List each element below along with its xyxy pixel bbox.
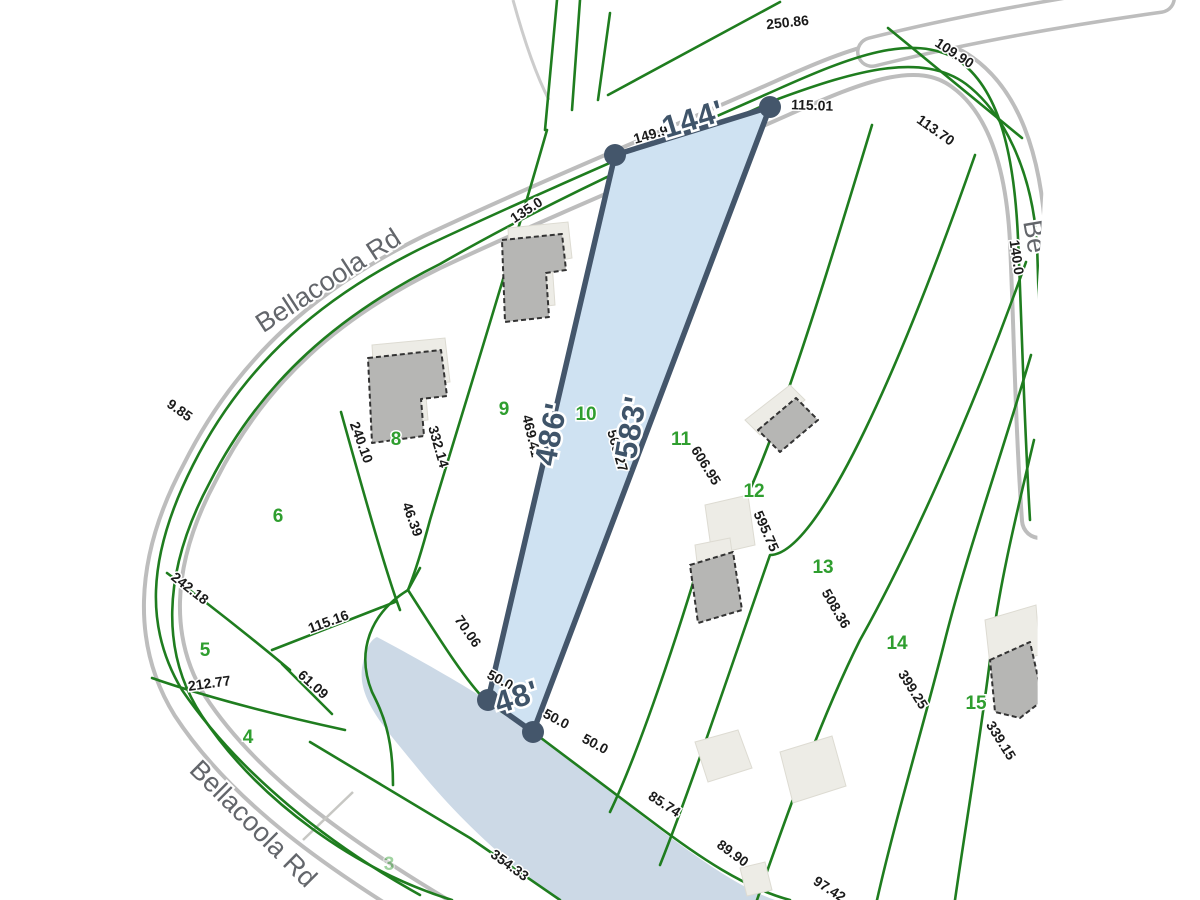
map-canvas: Bellacoola RdBellacoola RdBe 250.86109.9… [0,0,1200,900]
dimension-label: 46.39 [399,500,426,539]
road-branch-northeast [872,0,1160,52]
dimension-label: 97.42 [811,873,849,900]
building-lot9 [502,234,566,322]
parcel-vertex [522,721,544,743]
dimension-label: 339.15 [983,718,1019,763]
lot-number-label: 12 [743,481,764,502]
dimension-label: 50.0 [541,705,573,732]
building-light [695,730,752,782]
parcel-map: Bellacoola RdBellacoola RdBe 250.86109.9… [0,0,1200,900]
dimension-label: 115.01 [791,96,834,113]
dimension-label: 50.0 [580,730,612,757]
lot-number-label: 11 [671,429,692,450]
lot-number-label: 8 [391,429,402,450]
dimension-label: 606.95 [688,443,724,488]
lot-number-label: 15 [965,693,987,714]
dimension-label: 113.70 [914,111,958,148]
lot-number-label: 13 [812,557,833,578]
dimension-label: 508.36 [819,586,854,631]
dimension-label: 332.14 [425,424,452,470]
dimension-label: 9.85 [164,396,196,425]
building-lot12 [690,552,742,623]
lot-number-label: 10 [575,404,596,425]
lot-number-label: 6 [273,506,284,527]
dimension-label: 115.16 [306,607,351,636]
dimension-label: 250.86 [765,12,809,32]
building-light [780,736,846,803]
lot-number-label: 14 [886,633,908,654]
dimension-label: 89.90 [714,836,752,870]
dimension-label: 399.25 [895,667,931,712]
dimension-label: 595.75 [751,508,783,554]
lot-number-label: 9 [499,399,510,420]
lot-number-label: 3 [384,854,395,875]
road-fragment-top [513,0,549,100]
lot-number-label: 4 [243,727,254,748]
dimension-label: 70.06 [451,612,484,650]
parcel-vertex [759,96,781,118]
map-margin [1037,55,1200,900]
lot-number-label: 5 [200,640,211,661]
parcel-vertex [604,144,626,166]
